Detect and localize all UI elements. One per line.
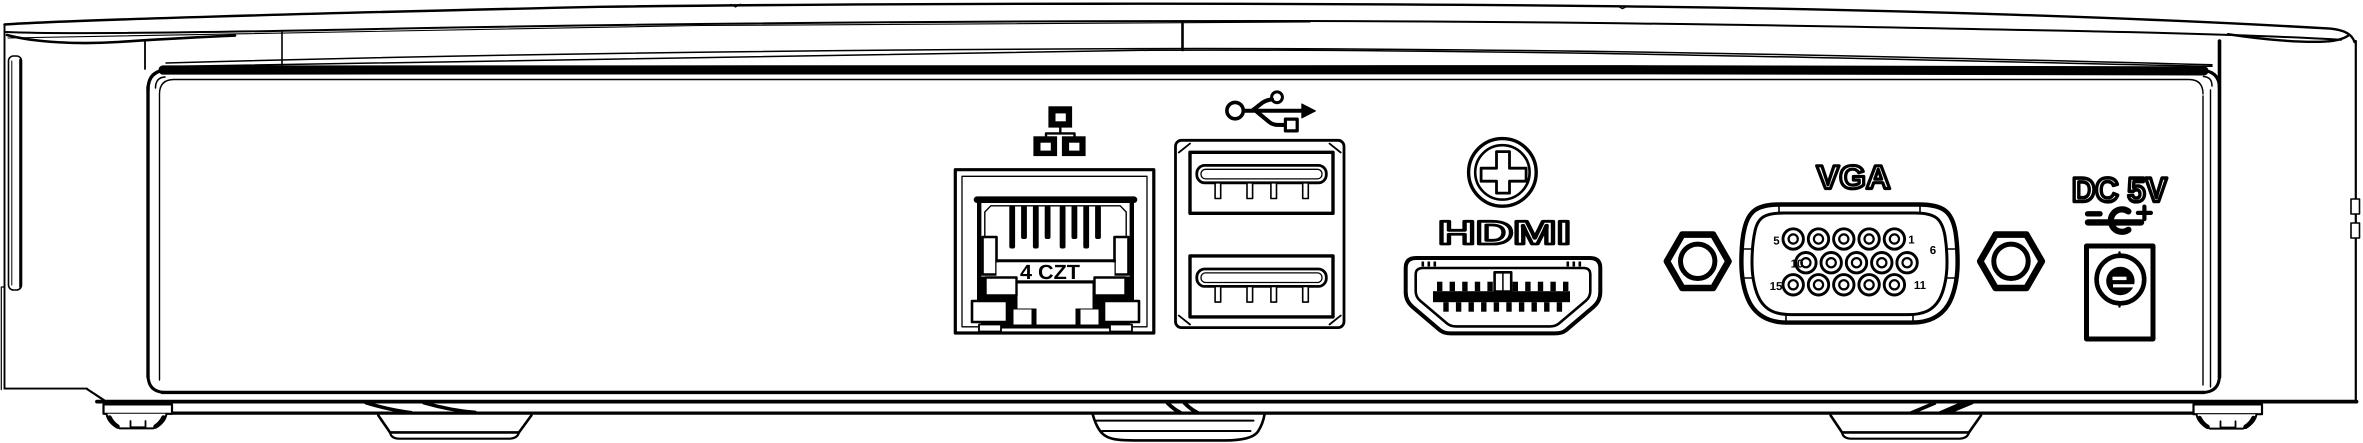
svg-text:11: 11 (1914, 280, 1927, 292)
svg-text:DC 5V: DC 5V (2072, 172, 2167, 210)
svg-text:6: 6 (1930, 245, 1936, 257)
svg-text:1: 1 (1908, 235, 1915, 247)
svg-text:5: 5 (1773, 236, 1780, 248)
svg-text:4 CZT: 4 CZT (1020, 261, 1080, 284)
svg-text:15: 15 (1770, 281, 1783, 293)
svg-text:10: 10 (1791, 259, 1804, 271)
svg-text:HDMI: HDMI (1438, 214, 1571, 251)
svg-text:VGA: VGA (1817, 159, 1891, 196)
